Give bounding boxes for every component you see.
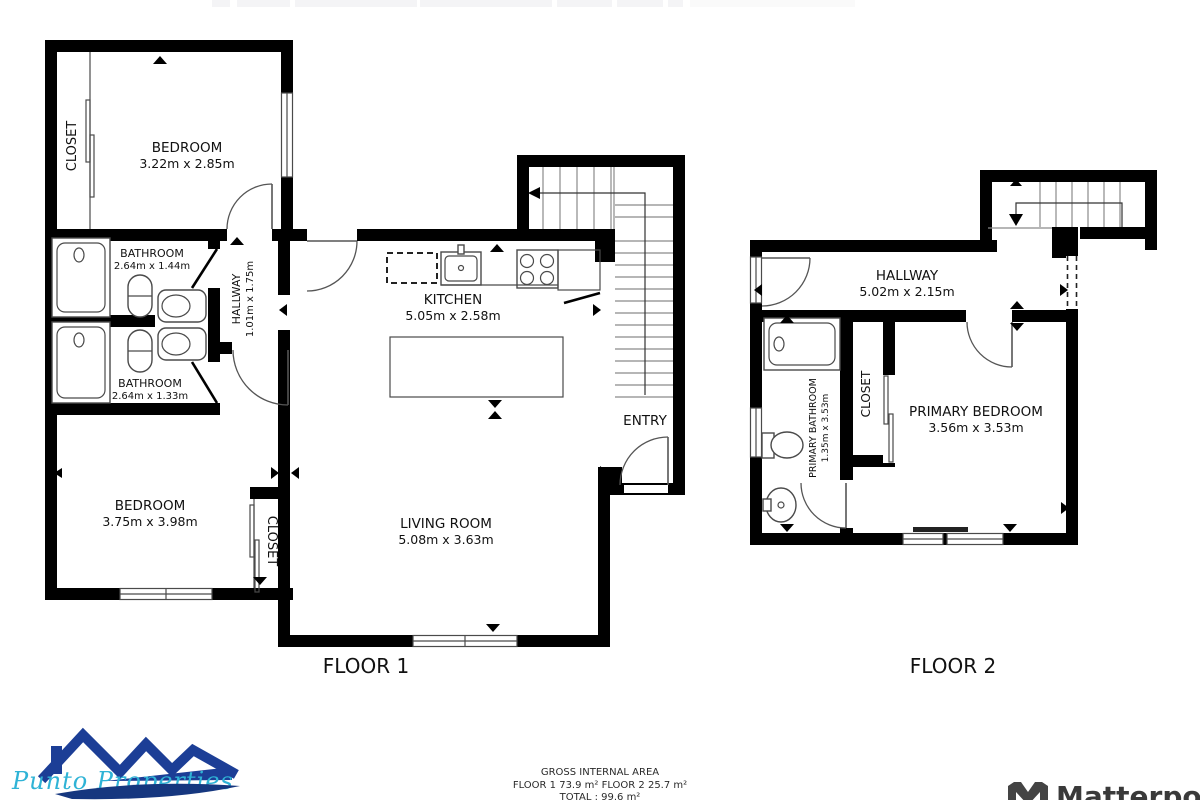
- hallway2-dims: 5.02m x 2.15m: [859, 284, 954, 299]
- primary-bedroom-dims: 3.56m x 3.53m: [928, 420, 1023, 435]
- primary-bedroom-label: PRIMARY BEDROOM: [909, 404, 1043, 420]
- bathroom-top-label: BATHROOM: [120, 247, 184, 260]
- counter: [558, 250, 600, 290]
- sliding-door: [86, 52, 94, 229]
- bedroom-top-label: BEDROOM: [152, 140, 222, 156]
- floor-areas-text: FLOOR 1 73.9 m² FLOOR 2 25.7 m²: [513, 780, 687, 791]
- total-area-text: TOTAL : 99.6 m²: [559, 792, 641, 800]
- bathroom-top-dims: 2.64m x 1.44m: [114, 261, 190, 272]
- floor1-title: FLOOR 1: [323, 654, 409, 678]
- floorplan-canvas: CLOSET BEDROOM 3.22m x 2.85m BATHROOM 2.…: [0, 0, 1200, 800]
- kitchen-island: [390, 337, 563, 397]
- hallway2-label: HALLWAY: [876, 268, 939, 284]
- footer-area-summary: GROSS INTERNAL AREA FLOOR 1 73.9 m² FLOO…: [513, 767, 687, 800]
- stove-icon: [517, 250, 558, 288]
- kitchen-dims: 5.05m x 2.58m: [405, 308, 500, 323]
- agency-logo: Punto Properties: [11, 735, 240, 799]
- toilet-icon: [158, 290, 206, 322]
- floor2-windows: [750, 256, 1078, 545]
- stair-direction-arrow: [1009, 214, 1023, 226]
- stair-direction-arrow: [528, 187, 540, 199]
- toilet-icon: [158, 328, 206, 360]
- kitchen-sink-icon: [441, 245, 481, 285]
- closet2-label: CLOSET: [859, 370, 873, 417]
- living-room-label: LIVING ROOM: [400, 516, 492, 532]
- floor2-plan: HALLWAY 5.02m x 2.15m PRIMARY BATHROOM 1…: [750, 170, 1157, 678]
- matterport-m-icon: [1008, 782, 1048, 800]
- living-room-dims: 5.08m x 3.63m: [398, 532, 493, 547]
- closet-bottom-label: CLOSET: [264, 516, 279, 567]
- bathroom-bottom-dims: 2.64m x 1.33m: [112, 391, 188, 402]
- bathtub-icon: [52, 322, 110, 403]
- floor1-windows: [120, 93, 668, 647]
- sink-icon: [763, 488, 796, 522]
- gross-internal-area-title: GROSS INTERNAL AREA: [541, 767, 659, 778]
- floor1-plan: CLOSET BEDROOM 3.22m x 2.85m BATHROOM 2.…: [45, 40, 685, 678]
- bathtub-icon: [52, 238, 110, 317]
- toilet-icon: [762, 432, 803, 458]
- hallway-label: HALLWAY: [230, 273, 243, 324]
- bedroom-bottom-dims: 3.75m x 3.98m: [102, 514, 197, 529]
- entry-label: ENTRY: [623, 413, 667, 429]
- primary-bathroom-label: PRIMARY BATHROOM: [808, 378, 819, 478]
- closet-top-label: CLOSET: [65, 121, 80, 172]
- bathroom-bottom-label: BATHROOM: [118, 377, 182, 390]
- sliding-door: [883, 375, 895, 463]
- provider-name-text: Matterport: [1056, 780, 1200, 800]
- kitchen-label: KITCHEN: [424, 292, 483, 308]
- hallway-dims: 1.01m x 1.75m: [245, 261, 256, 337]
- floor2-stairs: [988, 179, 1122, 228]
- provider-logo: Matterport: [1008, 780, 1200, 800]
- window-sill: [913, 527, 968, 532]
- sink-icon: [128, 275, 152, 317]
- bedroom-bottom-label: BEDROOM: [115, 498, 185, 514]
- appliance-dashed-icon: [387, 253, 437, 283]
- sink-icon: [128, 330, 152, 372]
- top-crop-bar: [212, 0, 855, 7]
- bedroom-top-dims: 3.22m x 2.85m: [139, 156, 234, 171]
- primary-bathroom-dims: 1.35m x 3.53m: [821, 394, 831, 463]
- floor2-title: FLOOR 2: [910, 654, 996, 678]
- bathtub-icon: [764, 318, 840, 370]
